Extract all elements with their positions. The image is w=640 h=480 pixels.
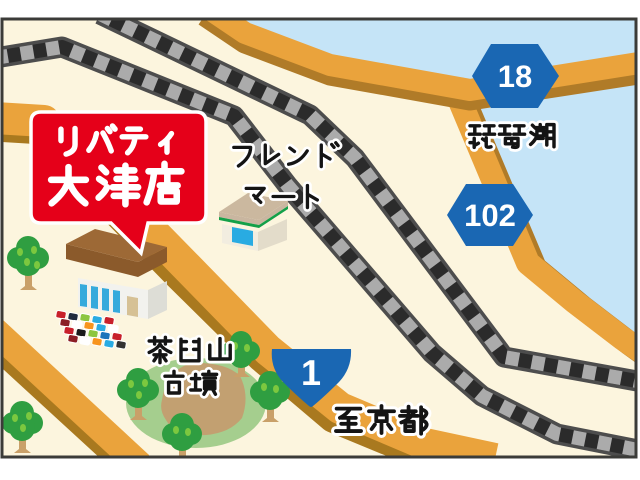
svg-text:18: 18	[498, 59, 532, 94]
svg-text:1: 1	[301, 352, 321, 393]
svg-text:102: 102	[464, 198, 516, 233]
